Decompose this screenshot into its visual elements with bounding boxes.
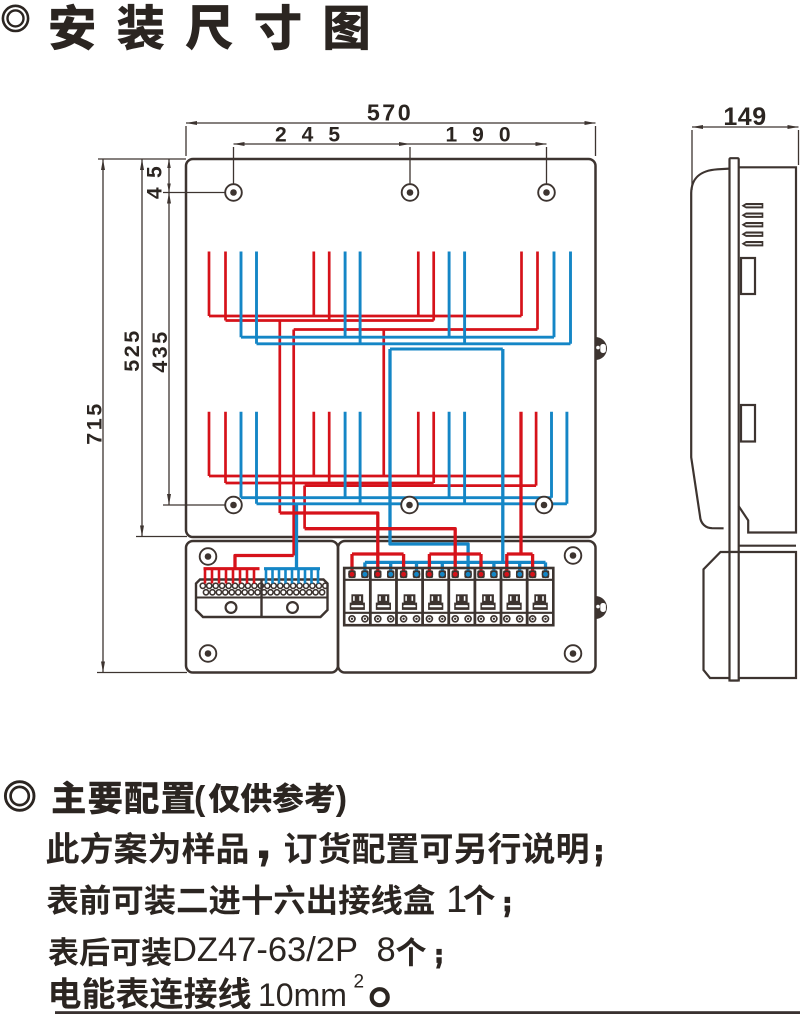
svg-text:149: 149 <box>723 103 766 131</box>
svg-text:): ) <box>336 780 347 818</box>
svg-text:45: 45 <box>144 157 167 199</box>
svg-text:DZ47-63/2P: DZ47-63/2P <box>172 931 358 969</box>
svg-text:1: 1 <box>446 879 467 921</box>
svg-text:10mm: 10mm <box>258 977 347 1013</box>
svg-text:525: 525 <box>120 328 144 371</box>
svg-text:715: 715 <box>83 401 107 444</box>
svg-text:190: 190 <box>445 124 525 147</box>
svg-text:2: 2 <box>354 972 365 993</box>
svg-text:8: 8 <box>377 931 396 969</box>
svg-text:570: 570 <box>367 100 413 126</box>
svg-text:(: ( <box>194 780 206 818</box>
svg-text:245: 245 <box>275 124 355 147</box>
svg-text:435: 435 <box>148 329 172 372</box>
